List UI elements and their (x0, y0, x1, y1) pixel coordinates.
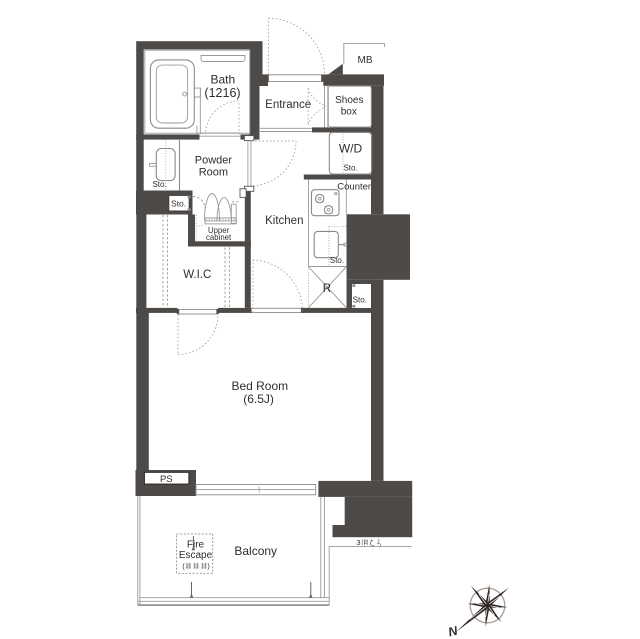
svg-text:cabinet: cabinet (206, 233, 232, 242)
svg-text:(1216): (1216) (204, 86, 240, 100)
svg-text:Room: Room (199, 167, 228, 179)
svg-text:Sto.: Sto. (353, 296, 367, 305)
svg-text:Counter: Counter (337, 181, 371, 192)
svg-text:Kitchen: Kitchen (265, 215, 303, 227)
svg-text:W/D: W/D (339, 142, 363, 156)
svg-text:3: 3 (356, 538, 360, 547)
svg-text:): ) (207, 564, 209, 571)
svg-text:Sto.: Sto. (330, 256, 344, 265)
svg-text:Balcony: Balcony (234, 544, 277, 558)
svg-text:Escape: Escape (179, 550, 213, 561)
svg-text:W.I.C: W.I.C (183, 269, 211, 281)
svg-text:MB: MB (358, 55, 373, 66)
svg-text:Powder: Powder (195, 155, 233, 167)
svg-text:Sto.: Sto. (171, 199, 186, 209)
svg-text:Fire: Fire (187, 539, 205, 550)
svg-text:Bath: Bath (210, 73, 235, 87)
svg-text:Bed Room: Bed Room (231, 379, 288, 393)
svg-text:R: R (323, 283, 331, 295)
svg-text:(6.5J): (6.5J) (243, 392, 274, 406)
svg-text:Entrance: Entrance (265, 99, 311, 111)
svg-text:PS: PS (160, 474, 173, 485)
svg-text:Shoes: Shoes (335, 95, 363, 106)
svg-text:Sto.: Sto. (343, 164, 357, 173)
svg-text:box: box (341, 106, 357, 117)
svg-text:Sto.: Sto. (152, 180, 166, 189)
